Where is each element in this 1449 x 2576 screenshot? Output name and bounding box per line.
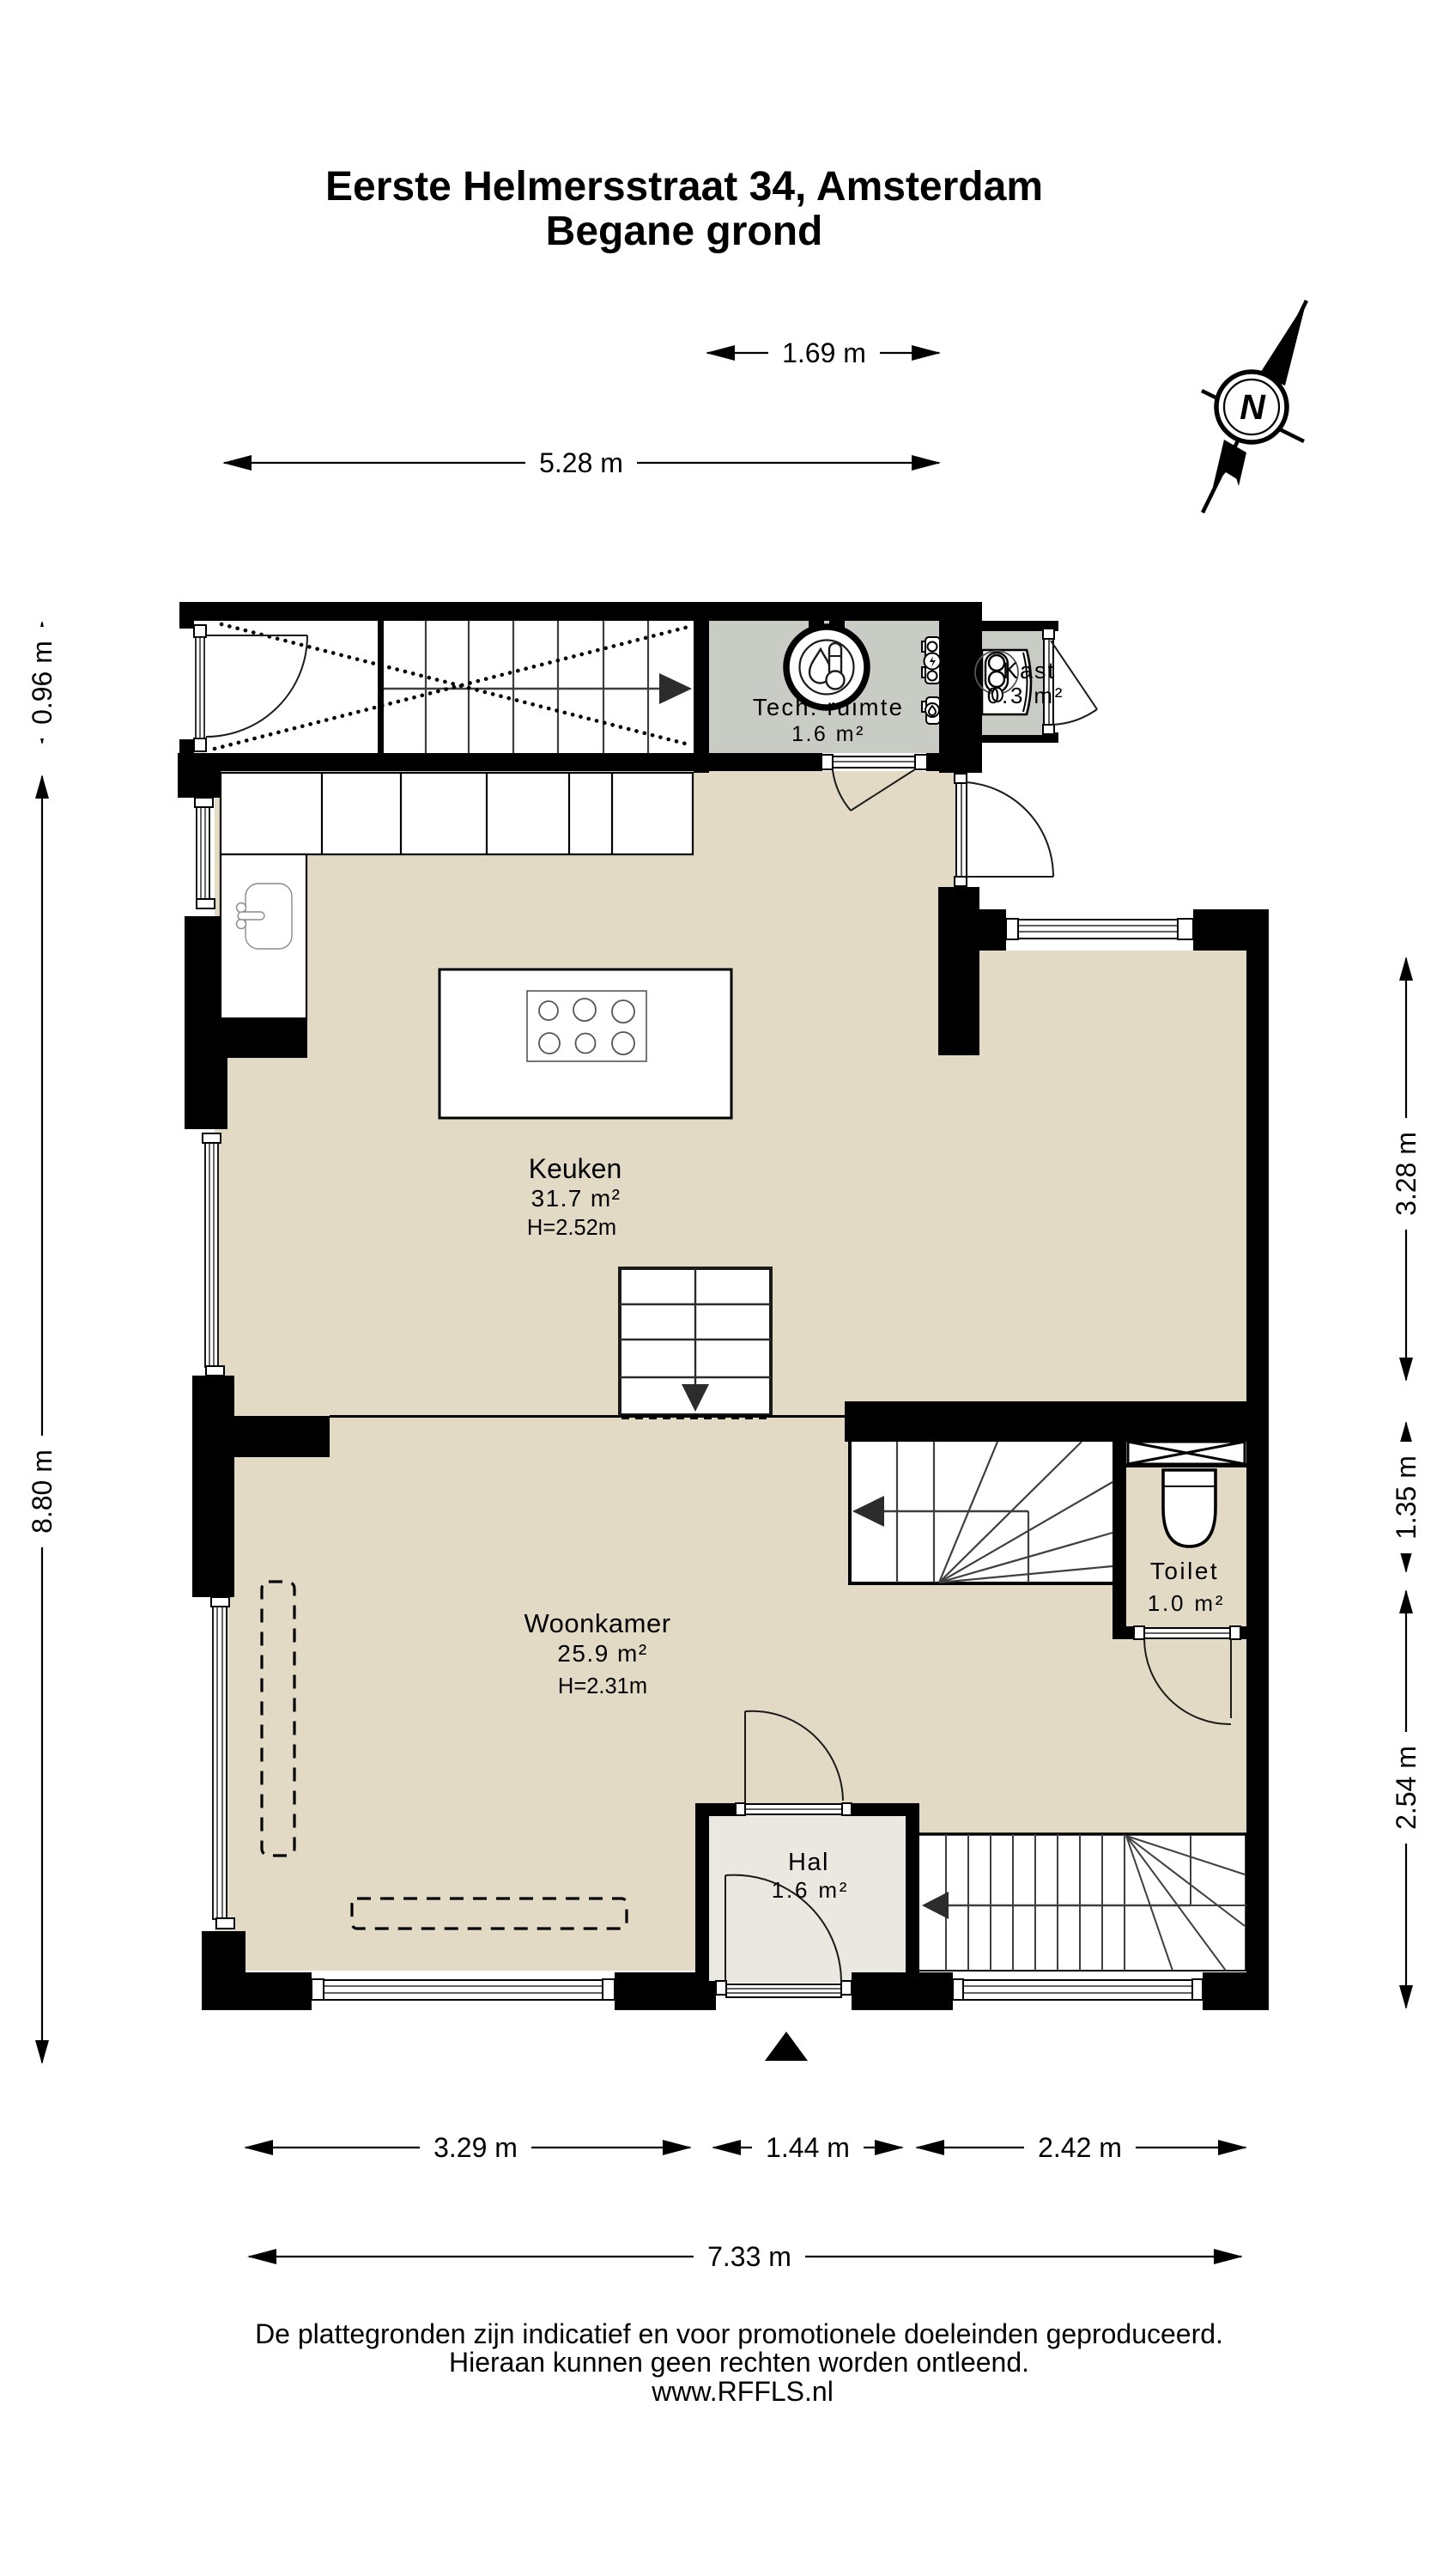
svg-text:3.29 m: 3.29 m xyxy=(433,2132,518,2163)
svg-text:3.28 m: 3.28 m xyxy=(1391,1132,1422,1216)
svg-text:Hal: Hal xyxy=(788,1849,829,1876)
svg-text:www.RFFLS.nl: www.RFFLS.nl xyxy=(651,2376,834,2407)
svg-text:1.0 m²: 1.0 m² xyxy=(1148,1590,1225,1616)
svg-text:Kast: Kast xyxy=(1003,658,1056,683)
svg-text:2.54 m: 2.54 m xyxy=(1391,1746,1422,1830)
svg-text:Eerste Helmersstraat 34, Amste: Eerste Helmersstraat 34, Amsterdam xyxy=(325,164,1043,210)
svg-text:H=2.31m: H=2.31m xyxy=(558,1674,647,1698)
svg-text:De plattegronden zijn indicati: De plattegronden zijn indicatief en voor… xyxy=(255,2318,1223,2349)
svg-text:1.6 m²: 1.6 m² xyxy=(791,722,865,746)
svg-text:1.6 m²: 1.6 m² xyxy=(772,1877,849,1903)
svg-text:25.9 m²: 25.9 m² xyxy=(557,1640,647,1667)
svg-text:5.28 m: 5.28 m xyxy=(539,447,623,478)
svg-text:31.7 m²: 31.7 m² xyxy=(531,1185,621,1212)
svg-text:Tech. ruimte: Tech. ruimte xyxy=(753,694,904,720)
svg-text:Keuken: Keuken xyxy=(529,1153,622,1184)
svg-text:Woonkamer: Woonkamer xyxy=(524,1608,670,1638)
svg-text:Begane grond: Begane grond xyxy=(546,209,823,254)
svg-text:0.96 m: 0.96 m xyxy=(27,641,58,725)
svg-text:1.35 m: 1.35 m xyxy=(1391,1455,1422,1540)
svg-text:Toilet: Toilet xyxy=(1150,1558,1219,1584)
svg-text:1.69 m: 1.69 m xyxy=(782,337,866,368)
svg-text:8.80 m: 8.80 m xyxy=(27,1449,58,1534)
svg-text:Hieraan kunnen geen rechten wo: Hieraan kunnen geen rechten worden ontle… xyxy=(449,2347,1029,2378)
svg-text:H=2.52m: H=2.52m xyxy=(527,1216,616,1240)
svg-text:7.33 m: 7.33 m xyxy=(707,2241,791,2272)
svg-text:1.44 m: 1.44 m xyxy=(766,2132,850,2163)
svg-text:2.42 m: 2.42 m xyxy=(1038,2132,1122,2163)
svg-text:N: N xyxy=(1240,387,1266,427)
svg-text:0.3 m²: 0.3 m² xyxy=(987,683,1064,708)
